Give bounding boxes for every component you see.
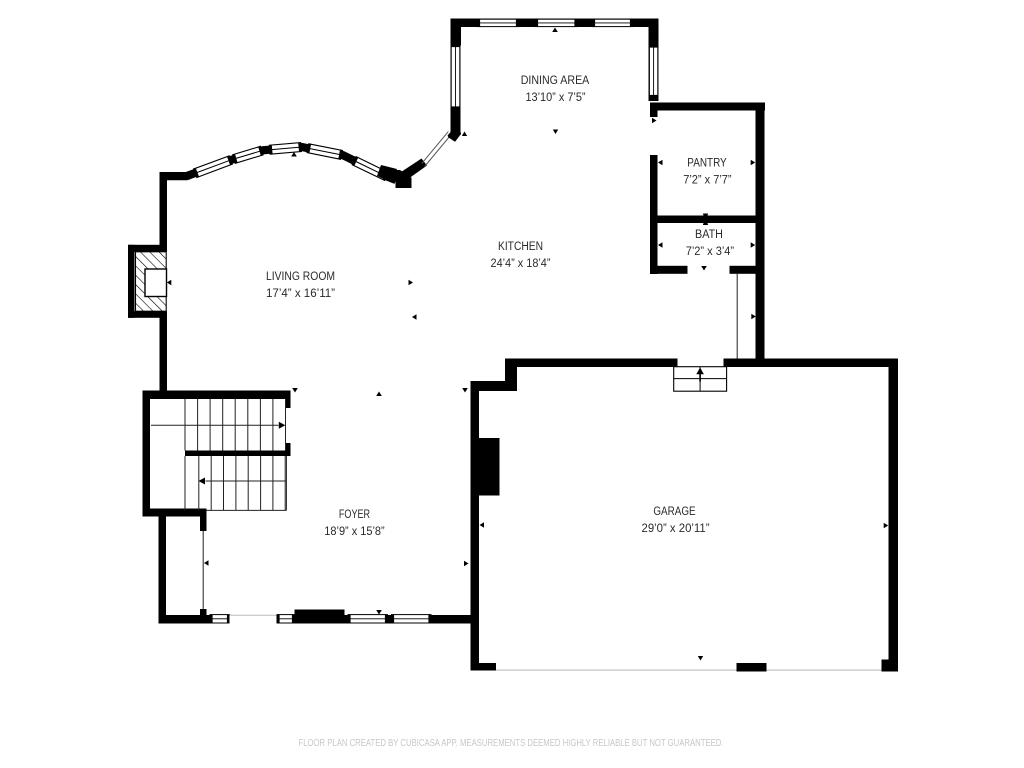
svg-text:DINING AREA: DINING AREA xyxy=(521,73,590,87)
svg-text:FLOOR PLAN CREATED BY CUBICASA: FLOOR PLAN CREATED BY CUBICASA APP. MEAS… xyxy=(299,738,724,749)
svg-text:FOYER: FOYER xyxy=(339,507,370,521)
svg-text:7’2” x 3’4”: 7’2” x 3’4” xyxy=(686,244,734,258)
svg-text:24’4” x 18’4”: 24’4” x 18’4” xyxy=(491,256,551,270)
svg-text:GARAGE: GARAGE xyxy=(653,504,695,518)
svg-text:BATH: BATH xyxy=(695,227,723,241)
svg-text:PANTRY: PANTRY xyxy=(687,156,726,170)
svg-text:LIVING ROOM: LIVING ROOM xyxy=(266,269,335,283)
svg-text:7’2” x 7’7”: 7’2” x 7’7” xyxy=(683,173,731,187)
svg-text:KITCHEN: KITCHEN xyxy=(498,239,543,253)
svg-text:13’10” x 7’5”: 13’10” x 7’5” xyxy=(525,90,585,104)
svg-text:29’0” x 20’11”: 29’0” x 20’11” xyxy=(642,521,710,535)
svg-text:18’9” x 15’8”: 18’9” x 15’8” xyxy=(324,524,384,538)
svg-text:17’4” x 16’11”: 17’4” x 16’11” xyxy=(266,286,335,300)
